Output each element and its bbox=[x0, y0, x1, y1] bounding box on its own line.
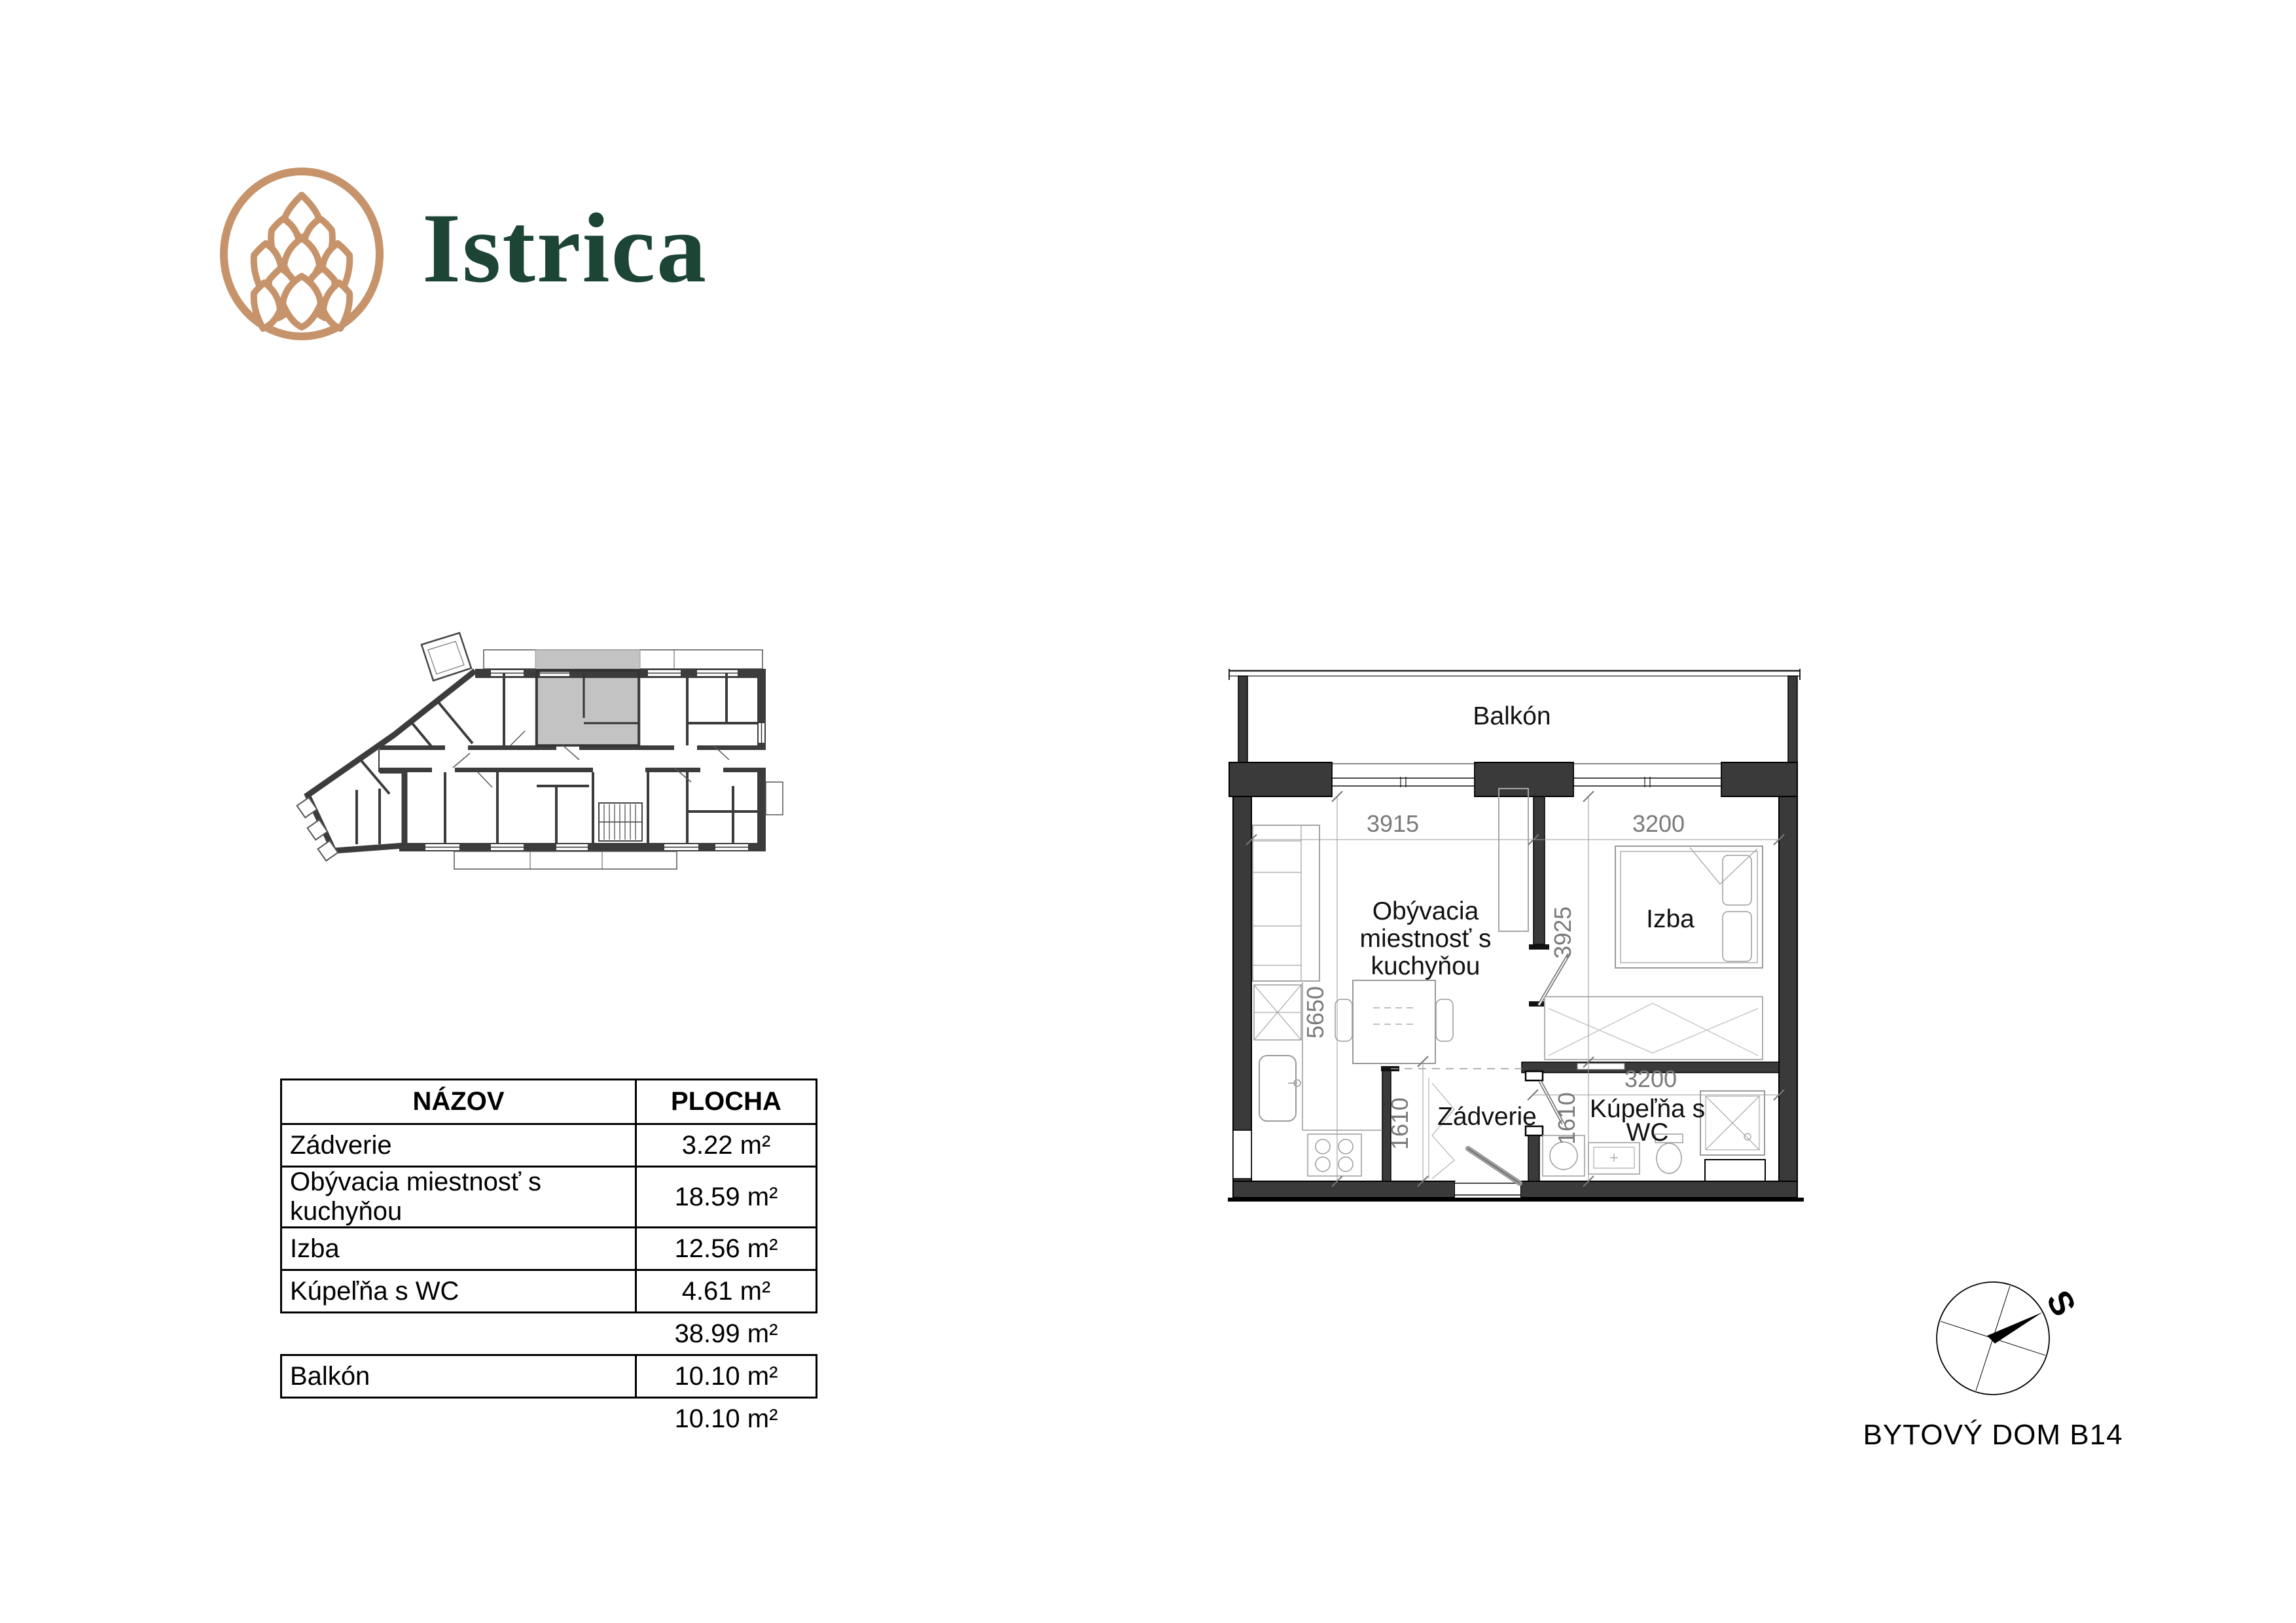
room-area: 3.22 m² bbox=[636, 1124, 817, 1167]
room-name: Zádverie bbox=[281, 1124, 636, 1167]
label-izba: Izba bbox=[1646, 905, 1695, 933]
room-area: 12.56 m² bbox=[636, 1228, 817, 1270]
dim-room-depth: 3925 bbox=[1549, 906, 1576, 959]
compass-rose: S bbox=[1931, 1273, 2088, 1404]
plan-bottom-wall bbox=[1228, 1181, 1804, 1202]
room-area-table: NÁZOV PLOCHA Zádverie 3.22 m² Obývacia m… bbox=[280, 1079, 817, 1440]
label-balcony: Balkón bbox=[1473, 702, 1551, 730]
living-cabinet bbox=[1499, 789, 1528, 931]
dim-bath-depth: 1610 bbox=[1553, 1092, 1580, 1145]
wardrobe bbox=[1545, 997, 1763, 1060]
table-row: Izba 12.56 m² bbox=[281, 1228, 817, 1270]
label-hall: Zádverie bbox=[1437, 1103, 1537, 1131]
label-living-2: miestnosť s bbox=[1359, 925, 1491, 953]
interior-total: 38.99 m² bbox=[636, 1313, 817, 1355]
plan-balcony-railing bbox=[1229, 669, 1800, 680]
plan-partition-living-bedroom bbox=[1529, 796, 1569, 1007]
balcony-total: 10.10 m² bbox=[636, 1398, 817, 1440]
header-plocha: PLOCHA bbox=[636, 1080, 817, 1124]
overview-corridor bbox=[380, 745, 766, 772]
table-row-balcony: Balkón 10.10 m² bbox=[281, 1355, 817, 1398]
entrance-door bbox=[1468, 1149, 1520, 1183]
label-living-1: Obývacia bbox=[1372, 897, 1479, 925]
table-header-row: NÁZOV PLOCHA bbox=[281, 1080, 817, 1124]
table-row: Kúpeľňa s WC 4.61 m² bbox=[281, 1270, 817, 1313]
room-area: 10.10 m² bbox=[636, 1355, 817, 1398]
table-total-row: 10.10 m² bbox=[281, 1398, 817, 1440]
sofa bbox=[1253, 825, 1319, 981]
bathroom-sink bbox=[1588, 1143, 1640, 1174]
room-area: 18.59 m² bbox=[636, 1167, 817, 1228]
table-row: Zádverie 3.22 m² bbox=[281, 1124, 817, 1167]
room-name: Kúpeľňa s WC bbox=[281, 1270, 636, 1313]
room-name: Balkón bbox=[281, 1355, 636, 1398]
apartment-floor-plan: Balkón Obývacia miestnosť s kuchyňou Izb… bbox=[1224, 651, 1806, 1214]
shower bbox=[1700, 1091, 1765, 1155]
room-name: Izba bbox=[281, 1228, 636, 1270]
pinecone-logo-icon bbox=[216, 165, 387, 343]
plan-wall-niche-left bbox=[1233, 1130, 1251, 1179]
dim-hall-depth: 1610 bbox=[1386, 1097, 1413, 1150]
dim-living-depth: 5650 bbox=[1302, 986, 1329, 1039]
overview-vestibule bbox=[422, 633, 471, 681]
label-bathroom-2: WC bbox=[1626, 1118, 1669, 1147]
building-label: BYTOVÝ DOM B14 bbox=[1859, 1419, 2127, 1452]
room-area: 4.61 m² bbox=[636, 1270, 817, 1313]
table-row: Obývacia miestnosť s kuchyňou 18.59 m² bbox=[281, 1167, 817, 1228]
dining-table bbox=[1335, 980, 1453, 1063]
dim-room-width: 3200 bbox=[1632, 810, 1685, 837]
kitchen-sink bbox=[1259, 1056, 1300, 1121]
label-living-3: kuchyňou bbox=[1371, 952, 1480, 980]
overview-stairs bbox=[599, 803, 642, 841]
header-nazov: NÁZOV bbox=[281, 1080, 636, 1124]
plan-wall-niche-bath bbox=[1705, 1160, 1765, 1181]
building-overview-plan bbox=[281, 625, 825, 916]
room-name: Obývacia miestnosť s kuchyňou bbox=[281, 1167, 636, 1228]
dim-bath-width: 3200 bbox=[1624, 1065, 1677, 1092]
brand-name: Istrica bbox=[422, 191, 708, 305]
plan-top-wall bbox=[1229, 762, 1797, 796]
overview-highlighted-unit bbox=[535, 650, 640, 745]
dim-living-width: 3915 bbox=[1367, 810, 1419, 837]
table-subtotal-row: 38.99 m² bbox=[281, 1313, 817, 1355]
kitchen-cooktop bbox=[1308, 1134, 1361, 1176]
brand-logo: Istrica bbox=[216, 165, 936, 348]
